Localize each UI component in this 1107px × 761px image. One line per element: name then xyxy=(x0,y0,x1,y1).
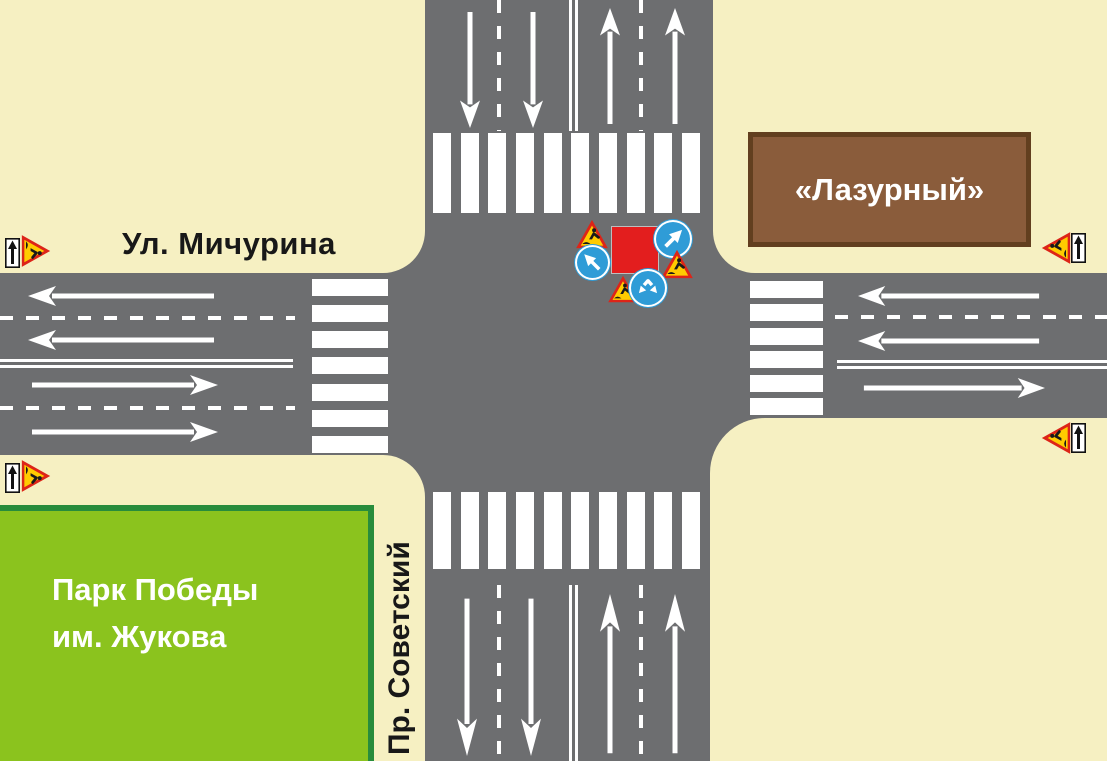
lane-arrow-right xyxy=(860,376,1045,400)
one-way-sign-icon xyxy=(5,238,20,268)
crosswalk-south xyxy=(433,492,700,569)
park-label-line2: им. Жукова xyxy=(52,614,368,661)
roadworks-triangle-icon xyxy=(1041,421,1071,455)
center-divider-double xyxy=(569,0,578,131)
roadworks-triangle-icon xyxy=(1041,231,1071,265)
lane-arrow-down xyxy=(455,596,479,756)
center-divider-double xyxy=(0,359,293,368)
center-divider-double xyxy=(837,360,1107,369)
street-label-michurina: Ул. Мичурина xyxy=(122,226,336,262)
crosswalk-west xyxy=(312,279,388,453)
lane-divider-dashed xyxy=(835,315,1107,319)
lane-arrow-down xyxy=(521,10,545,128)
detour-arrow-up-left-icon xyxy=(577,247,608,278)
lane-arrow-up xyxy=(598,8,622,126)
lane-arrow-down xyxy=(519,596,543,756)
one-way-sign-icon xyxy=(1071,423,1086,453)
lane-arrow-right xyxy=(28,420,218,444)
one-way-sign-icon xyxy=(1071,233,1086,263)
lane-arrow-left xyxy=(28,284,218,308)
lane-arrow-up xyxy=(598,594,622,756)
roadworks-triangle-icon xyxy=(660,249,694,279)
lane-divider-dashed xyxy=(639,585,643,761)
lane-arrow-right xyxy=(28,373,218,397)
lane-arrow-up xyxy=(663,594,687,756)
building-lazurny: «Лазурный» xyxy=(748,132,1031,247)
park-label: Парк Победы им. Жукова xyxy=(52,567,368,660)
roadworks-triangle-icon xyxy=(21,234,51,268)
park-pobedy: Парк Победы им. Жукова xyxy=(0,505,374,761)
crosswalk-east xyxy=(750,281,823,415)
lane-divider-dashed xyxy=(639,0,643,131)
lane-divider-dashed xyxy=(497,0,501,131)
crosswalk-north xyxy=(433,133,700,213)
lane-arrow-left xyxy=(858,284,1043,308)
building-label: «Лазурный» xyxy=(795,172,984,208)
lane-divider-dashed xyxy=(0,406,295,410)
center-divider-double xyxy=(569,585,578,761)
park-label-line1: Парк Победы xyxy=(52,567,368,614)
lane-arrow-left xyxy=(28,328,218,352)
lane-arrow-down xyxy=(458,10,482,128)
roadworks-triangle-icon xyxy=(21,459,51,493)
lane-divider-dashed xyxy=(497,585,501,761)
road-closed-square-icon xyxy=(612,227,658,273)
street-label-sovetsky: Пр. Советский xyxy=(375,505,425,761)
intersection-scheme: Ул. Мичурина Пр. Советский Парк Победы и… xyxy=(0,0,1107,761)
lane-arrow-left xyxy=(858,329,1043,353)
lane-divider-dashed xyxy=(0,316,295,320)
lane-arrow-up xyxy=(663,8,687,126)
one-way-sign-icon xyxy=(5,463,20,493)
pass-either-side-icon xyxy=(631,271,665,305)
roadworks-triangle-icon xyxy=(575,219,609,249)
